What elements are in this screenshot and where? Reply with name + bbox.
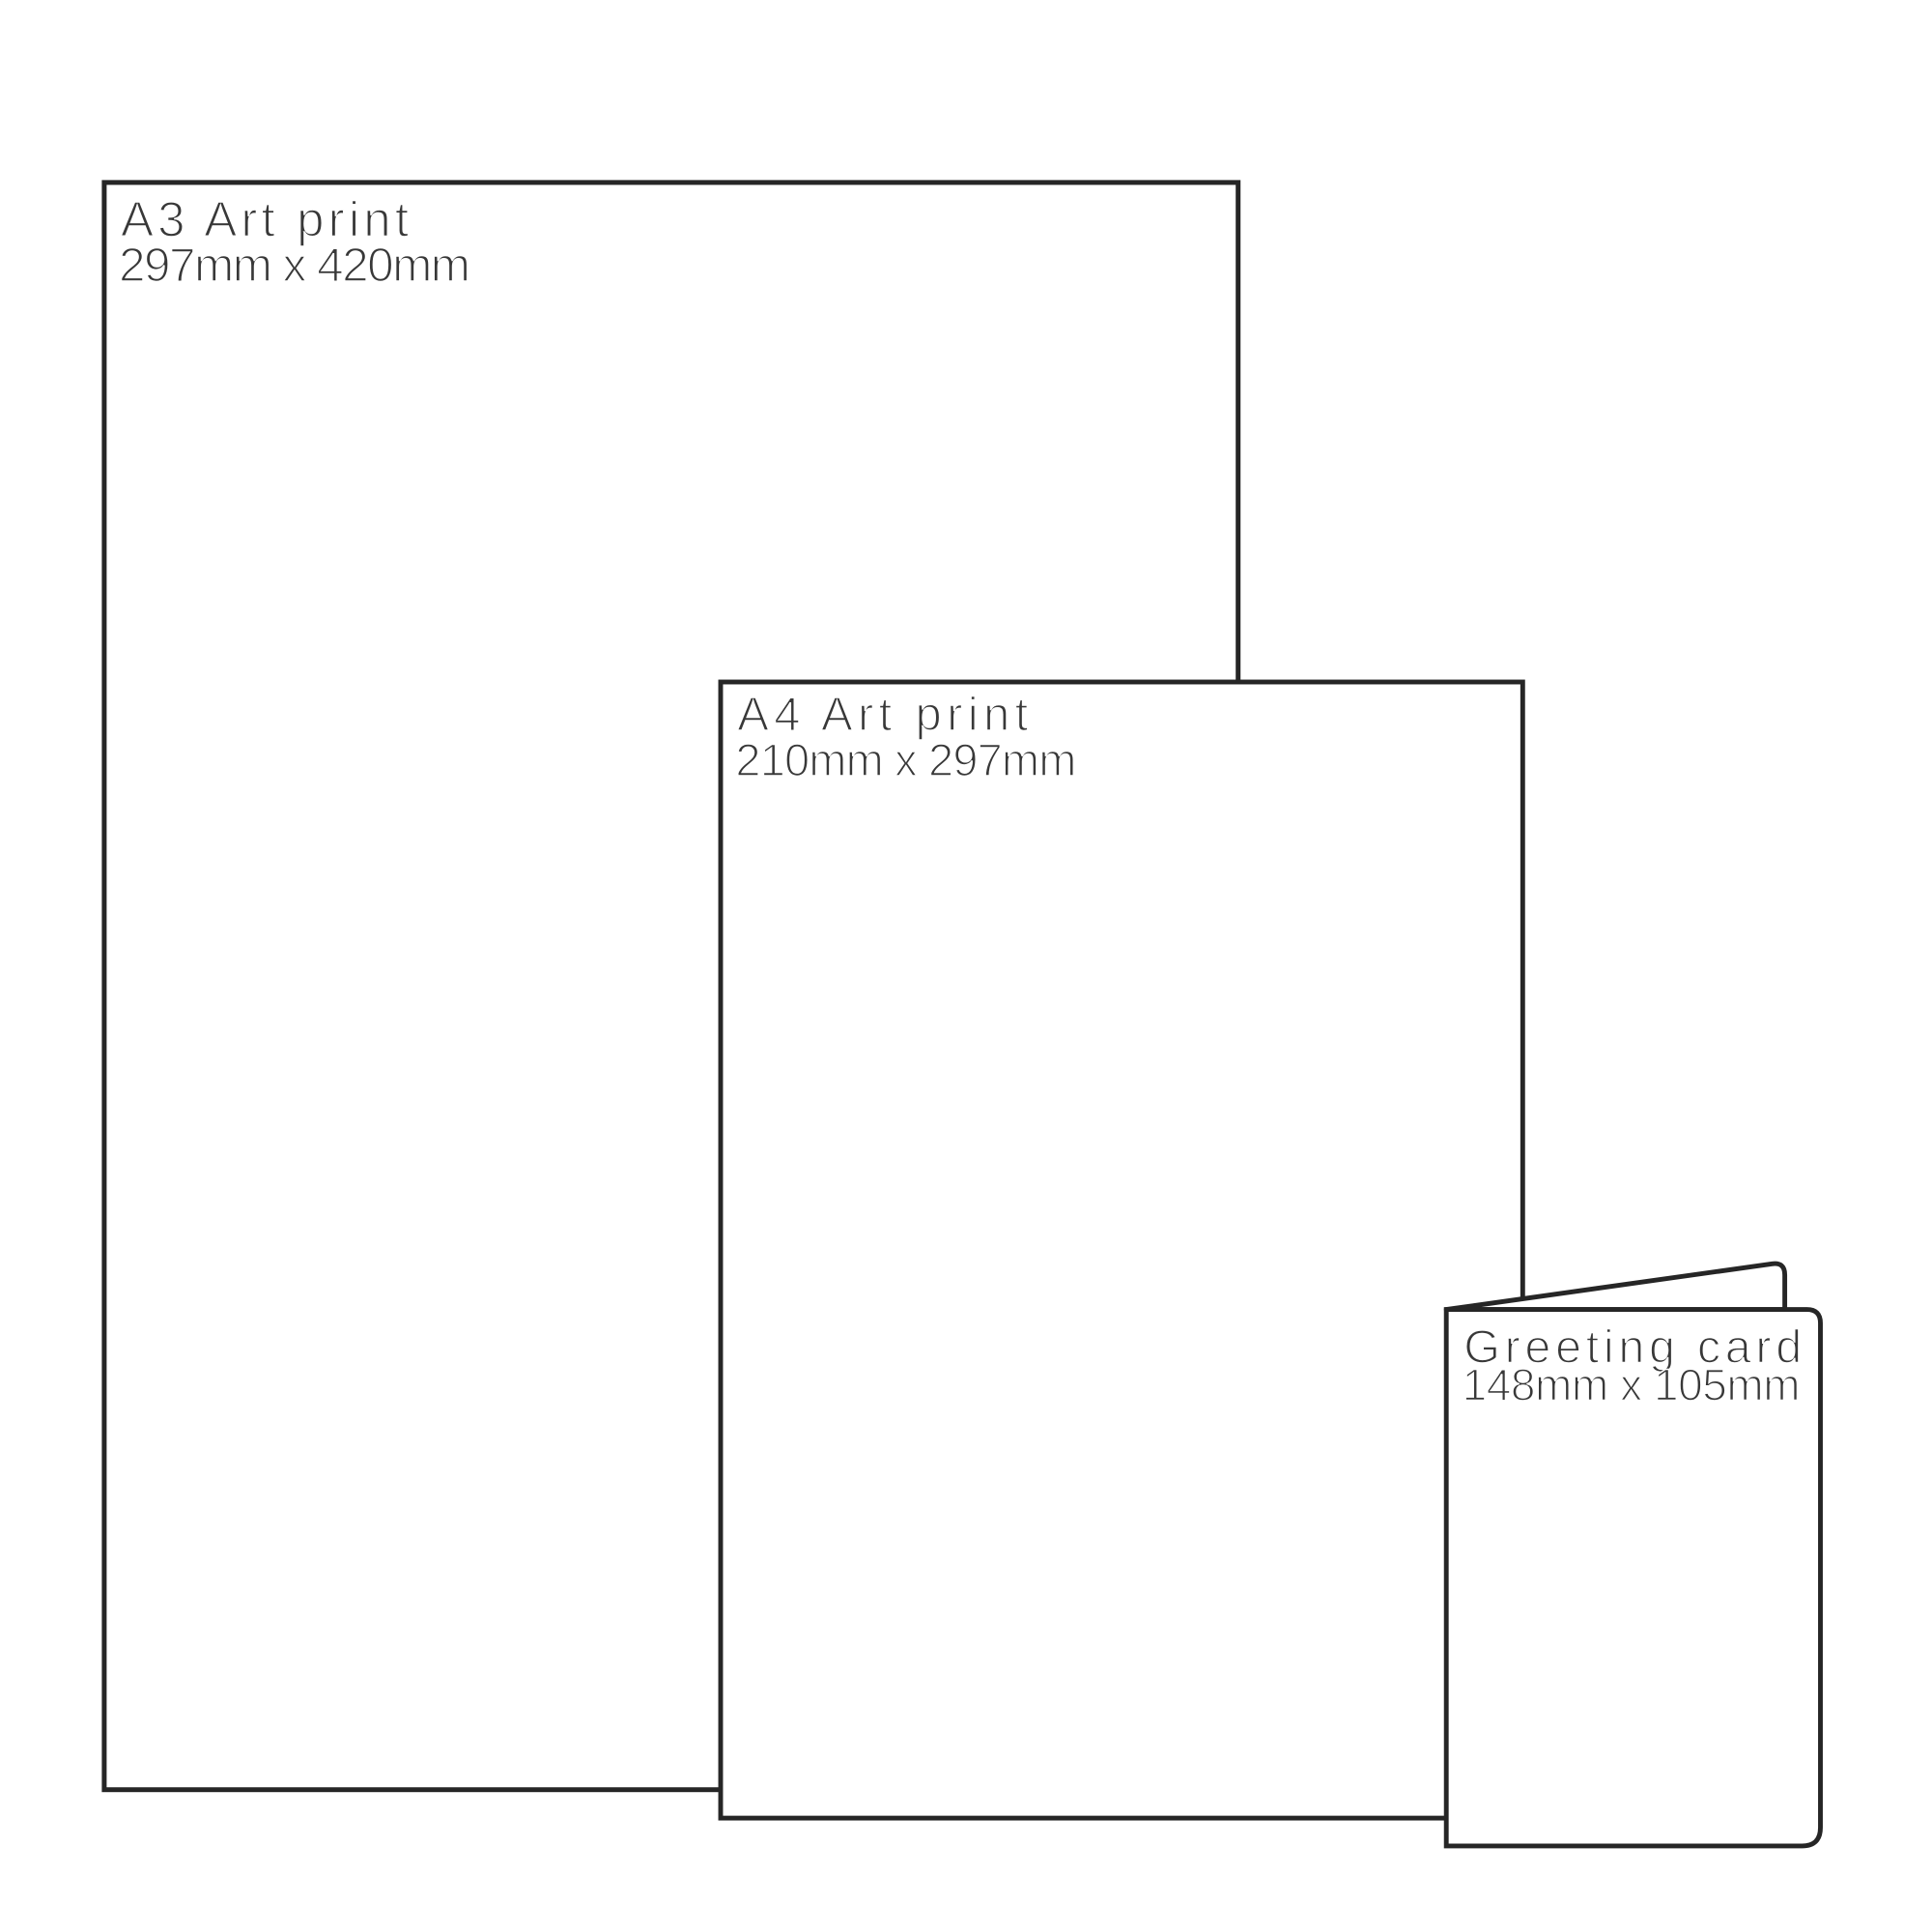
svg-text:148mm x 105mm: 148mm x 105mm [1463, 1360, 1801, 1410]
svg-text:A4 Art print: A4 Art print [737, 689, 1028, 741]
svg-text:297mm x 420mm: 297mm x 420mm [119, 239, 470, 292]
svg-text:210mm x 297mm: 210mm x 297mm [735, 734, 1076, 785]
